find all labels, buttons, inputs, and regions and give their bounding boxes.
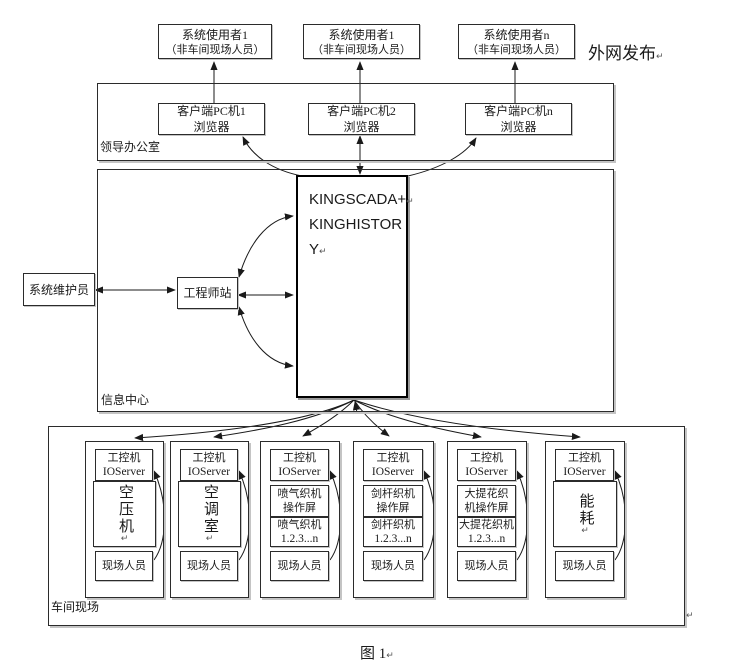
operator-screen-line1: 喷气织机 <box>278 487 322 501</box>
client-pc-browser: 浏览器 <box>343 119 379 135</box>
user-box-2: 系统使用者1 （非车间现场人员） <box>303 24 420 59</box>
person-box: 现场人员 <box>363 551 423 581</box>
operator-screen-box: 剑杆织机 操作屏 <box>363 485 423 517</box>
industrial-pc-box: 工控机 IOServer <box>95 449 153 481</box>
workshop-column-3: 工控机 IOServer 喷气织机 操作屏 喷气织机 1.2.3...n 现场人… <box>260 441 340 598</box>
industrial-pc-box: 工控机 IOServer <box>457 449 516 481</box>
paragraph-mark-icon: ↵ <box>121 535 129 544</box>
client-pc-browser: 浏览器 <box>500 119 536 135</box>
office-label: 领导办公室 <box>100 140 160 154</box>
scada-line-2: KINGHISTOR <box>309 212 404 237</box>
workshop-column-2: 工控机 IOServer 空调室 ↵ 现场人员 <box>170 441 249 598</box>
operator-screen-line1: 剑杆织机 <box>371 487 415 501</box>
industrial-pc-label: 工控机 <box>108 451 141 465</box>
device-label: 能耗 <box>578 493 593 527</box>
workshop-label: 车间现场 <box>51 600 99 614</box>
paragraph-mark-icon: ↵ <box>406 197 414 207</box>
diagram-canvas: 系统使用者1 （非车间现场人员） 系统使用者1 （非车间现场人员） 系统使用者n… <box>0 0 734 672</box>
industrial-pc-label: 工控机 <box>470 451 503 465</box>
person-box: 现场人员 <box>555 551 614 581</box>
client-pc-box-1: 客户端PC机1 浏览器 <box>158 103 265 135</box>
person-label: 现场人员 <box>278 559 322 573</box>
machine-units-line2: 1.2.3...n <box>374 532 411 546</box>
operator-screen-line2: 操作屏 <box>283 501 316 515</box>
workshop-column-1: 工控机 IOServer 空压机 ↵ 现场人员 <box>85 441 164 598</box>
user-name: 系统使用者n <box>483 27 549 43</box>
operator-screen-box: 大提花织 机操作屏 <box>457 485 516 517</box>
device-label: 空压机 <box>117 484 132 535</box>
industrial-pc-label: 工控机 <box>283 451 316 465</box>
machine-units-box: 喷气织机 1.2.3...n <box>270 517 329 547</box>
industrial-pc-box: 工控机 IOServer <box>270 449 329 481</box>
person-label: 现场人员 <box>465 559 509 573</box>
operator-screen-box: 喷气织机 操作屏 <box>270 485 329 517</box>
device-box: 空压机 ↵ <box>93 481 156 547</box>
industrial-pc-box: 工控机 IOServer <box>363 449 423 481</box>
person-box: 现场人员 <box>457 551 516 581</box>
paragraph-mark-icon: ↵ <box>656 52 664 62</box>
machine-units-line2: 1.2.3...n <box>468 532 505 546</box>
industrial-pc-label: 工控机 <box>568 451 601 465</box>
client-pc-browser: 浏览器 <box>193 119 229 135</box>
paragraph-mark-icon: ↵ <box>581 527 589 536</box>
figure-caption: 图 1↵ <box>360 642 394 663</box>
device-box: 能耗 ↵ <box>553 481 617 547</box>
workshop-column-6: 工控机 IOServer 能耗 ↵ 现场人员 <box>545 441 625 598</box>
person-label: 现场人员 <box>371 559 415 573</box>
person-box: 现场人员 <box>270 551 329 581</box>
io-server-label: IOServer <box>372 465 414 479</box>
client-pc-name: 客户端PC机1 <box>177 103 246 119</box>
device-box: 空调室 ↵ <box>178 481 241 547</box>
operator-screen-line1: 大提花织 <box>465 487 509 501</box>
io-server-label: IOServer <box>465 465 507 479</box>
industrial-pc-label: 工控机 <box>193 451 226 465</box>
workshop-column-4: 工控机 IOServer 剑杆织机 操作屏 剑杆织机 1.2.3...n 现场人… <box>353 441 434 598</box>
person-box: 现场人员 <box>180 551 238 581</box>
external-publish-text: 外网发布 <box>588 44 656 63</box>
machine-units-box: 大提花织机 1.2.3...n <box>457 517 516 547</box>
io-server-label: IOServer <box>188 465 230 479</box>
user-box-1: 系统使用者1 （非车间现场人员） <box>158 24 272 59</box>
maintainer-box: 系统维护员 <box>23 273 95 306</box>
io-server-label: IOServer <box>563 465 605 479</box>
person-label: 现场人员 <box>563 559 607 573</box>
device-label: 空调室 <box>202 484 217 535</box>
scada-line-3: Y↵ <box>309 237 404 262</box>
io-server-label: IOServer <box>278 465 320 479</box>
paragraph-mark-icon: ↵ <box>386 651 394 661</box>
scada-text: Y <box>309 241 319 258</box>
user-name: 系统使用者1 <box>182 27 248 43</box>
io-server-label: IOServer <box>103 465 145 479</box>
user-name: 系统使用者1 <box>328 27 394 43</box>
scada-line-1: KINGSCADA+↵ <box>309 187 404 212</box>
maintainer-label: 系统维护员 <box>29 282 89 298</box>
user-role: （非车间现场人员） <box>312 43 411 57</box>
paragraph-mark-icon: ↵ <box>206 535 214 544</box>
scada-server-box: KINGSCADA+↵ KINGHISTOR Y↵ <box>296 175 408 398</box>
client-pc-name: 客户端PC机n <box>484 103 553 119</box>
engineer-station-box: 工程师站 <box>177 277 238 309</box>
person-label: 现场人员 <box>187 559 231 573</box>
user-role: （非车间现场人员） <box>166 43 265 57</box>
machine-units-line1: 大提花织机 <box>459 518 514 532</box>
client-pc-name: 客户端PC机2 <box>327 103 396 119</box>
scada-text: KINGSCADA+ <box>309 191 406 208</box>
info-center-label: 信息中心 <box>101 393 149 407</box>
client-pc-box-2: 客户端PC机2 浏览器 <box>308 103 415 135</box>
figure-caption-text: 图 1 <box>360 646 386 662</box>
industrial-pc-box: 工控机 IOServer <box>180 449 238 481</box>
operator-screen-line2: 机操作屏 <box>465 501 509 515</box>
operator-screen-line2: 操作屏 <box>377 501 410 515</box>
industrial-pc-box: 工控机 IOServer <box>555 449 614 481</box>
person-label: 现场人员 <box>102 559 146 573</box>
machine-units-line2: 1.2.3...n <box>281 532 318 546</box>
machine-units-box: 剑杆织机 1.2.3...n <box>363 517 423 547</box>
paragraph-mark-icon: ↵ <box>319 247 327 257</box>
client-pc-box-3: 客户端PC机n 浏览器 <box>465 103 572 135</box>
user-box-3: 系统使用者n （非车间现场人员） <box>458 24 575 59</box>
external-publish-label: 外网发布↵ <box>588 44 664 64</box>
industrial-pc-label: 工控机 <box>377 451 410 465</box>
workshop-column-5: 工控机 IOServer 大提花织 机操作屏 大提花织机 1.2.3...n 现… <box>447 441 527 598</box>
machine-units-line1: 剑杆织机 <box>371 518 415 532</box>
user-role: （非车间现场人员） <box>467 43 566 57</box>
machine-units-line1: 喷气织机 <box>278 518 322 532</box>
paragraph-mark-icon: ↵ <box>686 612 694 621</box>
person-box: 现场人员 <box>95 551 153 581</box>
engineer-station-label: 工程师站 <box>183 285 231 301</box>
